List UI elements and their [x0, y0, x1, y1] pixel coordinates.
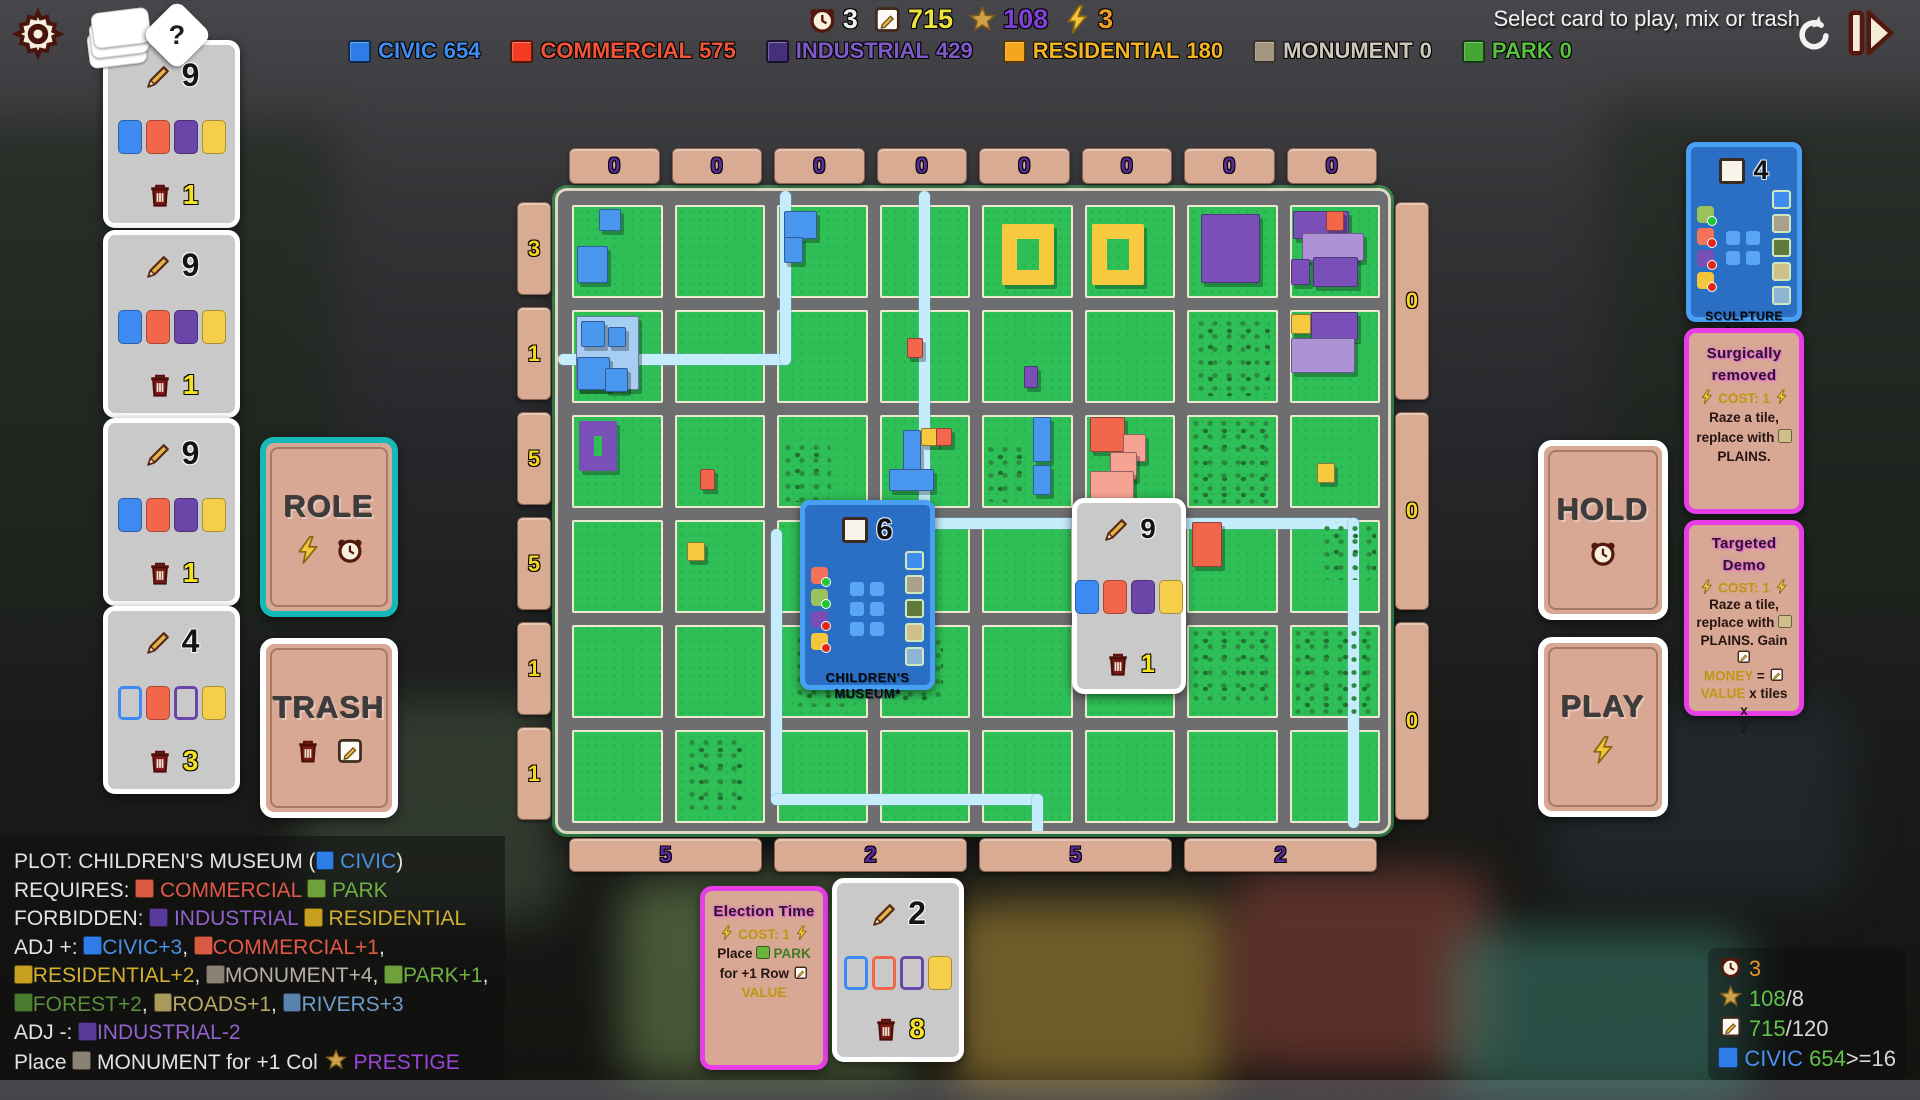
star-icon: [324, 1048, 348, 1072]
requirement-chip: [1697, 250, 1714, 267]
info-line: 3: [1718, 954, 1896, 984]
tile-chip: [202, 310, 226, 344]
note-icon: [335, 736, 365, 766]
tile-chip: [1159, 580, 1183, 614]
row-label-6[interactable]: 1: [517, 727, 551, 820]
end-turn-step-icon[interactable]: [1844, 6, 1898, 65]
building-tile: [1024, 366, 1039, 388]
action-card-body: COST: 1 Place PARKfor +1 Row VALUE: [712, 925, 816, 1003]
bolt-icon: [794, 925, 810, 941]
shape-cell: [870, 622, 884, 636]
adjacency-chip: [905, 623, 924, 642]
info-line: ADJ -: INDUSTRIAL-2: [14, 1019, 491, 1048]
forest-patch: [1320, 522, 1376, 580]
tile-chip: [900, 956, 924, 990]
info-line: ADJ +: CIVIC+3, COMMERCIAL+1,: [14, 934, 491, 963]
plot-info-panel: PLOT: CHILDREN'S MUSEUM ( CIVIC)REQUIRES…: [0, 836, 505, 1080]
tile-chip: [146, 686, 170, 720]
info-line: REQUIRES: COMMERCIAL PARK: [14, 877, 491, 906]
tile-type-chip: [756, 946, 769, 959]
card-tile-chips: [118, 120, 226, 154]
board-cell-r1c2[interactable]: [675, 205, 766, 298]
column-header-1[interactable]: 0: [569, 148, 660, 184]
tile-type-chip: [78, 1022, 97, 1041]
board-cell-r6c5[interactable]: [982, 730, 1073, 823]
forest-patch: [984, 443, 1022, 503]
tile-type-chip: [14, 993, 33, 1012]
info-line: PLOT: CHILDREN'S MUSEUM ( CIVIC): [14, 848, 491, 877]
building-tile: [700, 469, 716, 490]
building-tile: [1192, 522, 1221, 567]
note-icon: [793, 965, 809, 981]
row-label-3[interactable]: 5: [517, 412, 551, 505]
column-footer-3[interactable]: 5: [979, 838, 1172, 872]
legend-color-square: [511, 40, 534, 63]
action-card-targeted-demo[interactable]: Targeted Demo COST: 1 Raze a tile,replac…: [1684, 520, 1804, 716]
trash-icon: [1103, 649, 1133, 679]
hand-card-3[interactable]: 9 1: [103, 418, 240, 606]
column-header-3[interactable]: 0: [774, 148, 865, 184]
clock-icon: [1588, 538, 1618, 568]
plot-tile-icon: [1719, 158, 1745, 184]
river-segment: [1032, 794, 1043, 834]
board-cell-r4c2[interactable]: [675, 520, 766, 613]
resource-note: 715: [872, 4, 953, 35]
column-footer-2[interactable]: 2: [774, 838, 967, 872]
hold-button-card[interactable]: HOLD: [1538, 440, 1668, 620]
bolt-icon: [293, 535, 323, 565]
building-tile: [599, 209, 621, 231]
column-header-7[interactable]: 0: [1184, 148, 1275, 184]
tile-chip: [118, 498, 142, 532]
tile-type-chip: [135, 879, 154, 898]
river-segment: [771, 529, 782, 805]
shape-cell: [1726, 231, 1740, 245]
pencil-icon: [870, 899, 900, 929]
trash-icon: [871, 1014, 901, 1044]
row-label-4[interactable]: 5: [517, 517, 551, 610]
plot-adjacency-chips: [905, 551, 924, 666]
bolt-icon: [1699, 389, 1715, 405]
building-tile: [1311, 312, 1358, 340]
action-card-title: Targeted Demo: [1696, 533, 1792, 577]
building-tile: [1090, 471, 1134, 499]
pencil-icon: [1102, 514, 1132, 544]
note-icon: [1736, 649, 1752, 665]
tile-type-legend: CIVIC654COMMERCIAL575INDUSTRIAL429RESIDE…: [348, 38, 1572, 64]
card-cost: 9: [182, 247, 200, 284]
info-line: FOREST+2, ROADS+1, RIVERS+3: [14, 991, 491, 1020]
action-card-title: Surgically removed: [1696, 343, 1792, 387]
column-footer-1[interactable]: 5: [569, 838, 762, 872]
tile-type-chip: [1778, 615, 1791, 628]
card-cost: 4: [182, 623, 200, 660]
forest-patch: [1194, 317, 1270, 395]
card-trash-count: 1: [183, 179, 199, 211]
action-card-election-time[interactable]: Election Time COST: 1 Place PARKfor +1 R…: [700, 886, 828, 1070]
building-tile: [605, 368, 629, 392]
bolt-icon: [1774, 389, 1790, 405]
pencil-icon: [144, 251, 174, 281]
tile-type-chip: [304, 908, 323, 927]
tile-type-chip: [83, 936, 102, 955]
tile-chip: [202, 498, 226, 532]
column-header-8[interactable]: 0: [1287, 148, 1378, 184]
right-label-1[interactable]: 0: [1395, 202, 1429, 400]
info-line: CIVIC 654>=16: [1718, 1044, 1896, 1074]
shape-cell: [850, 622, 864, 636]
board-cell-r6c6[interactable]: [1085, 730, 1176, 823]
resource-bar: 37151083: [807, 4, 1113, 35]
shape-cell: [850, 602, 864, 616]
requirement-chip: [811, 633, 828, 650]
adjacency-chip: [1772, 262, 1791, 281]
card-cost: 9: [1140, 513, 1156, 545]
shape-cell: [870, 602, 884, 616]
board-cell-r5c1[interactable]: [572, 625, 663, 718]
column-header-4[interactable]: 0: [877, 148, 968, 184]
note-icon: [872, 4, 903, 35]
adjacency-chip: [1772, 190, 1791, 209]
building-tile: [907, 338, 923, 359]
plot-value: 6: [876, 513, 893, 547]
trash-icon: [145, 746, 175, 776]
board-cell-r6c3[interactable]: [777, 730, 868, 823]
bolt-icon: [719, 925, 735, 941]
tile-type-chip: [316, 851, 335, 870]
action-card-body: COST: 1 Raze a tile,replace with PLAINS.: [1696, 389, 1792, 467]
requirement-chip: [1697, 272, 1714, 289]
help-icon[interactable]: ?: [152, 10, 202, 60]
plot-shape-grid: [1726, 231, 1760, 265]
plot-card-childrens-museum[interactable]: 6 CHILDREN'S MUSEUM*: [800, 500, 935, 690]
card-cost: 2: [908, 895, 926, 932]
plot-requirement-chips: [1697, 206, 1714, 289]
card-trash-count: 8: [909, 1013, 925, 1045]
adjacency-chip: [1772, 286, 1791, 305]
resource-clock: 3: [807, 4, 858, 35]
bolt-icon: [1588, 735, 1618, 765]
requirement-chip: [1697, 228, 1714, 245]
shape-cell: [850, 582, 864, 596]
tile-type-chip: [14, 965, 33, 984]
tile-chip: [118, 310, 142, 344]
legend-color-square: [766, 40, 789, 63]
tile-chip: [174, 686, 198, 720]
pencil-icon: [144, 439, 174, 469]
card-tile-chips: [1075, 580, 1183, 614]
shape-cell: [870, 582, 884, 596]
deck-stack-icon[interactable]: [84, 8, 154, 64]
action-card-surgically-removed[interactable]: Surgically removed COST: 1 Raze a tile,r…: [1684, 328, 1804, 514]
board-cell-r4c1[interactable]: [572, 520, 663, 613]
board-cell-r2c6[interactable]: [1085, 310, 1176, 403]
building-tile: [687, 542, 704, 561]
tile-chip: [118, 120, 142, 154]
adjacency-chip: [905, 599, 924, 618]
row-labels: 315511: [517, 188, 551, 834]
tile-type-chip: [384, 965, 403, 984]
adjacency-chip: [905, 647, 924, 666]
right-label-3[interactable]: 0: [1395, 622, 1429, 820]
trash-icon: [145, 370, 175, 400]
play-button-card[interactable]: PLAY: [1538, 637, 1668, 817]
tile-chip: [146, 120, 170, 154]
tile-type-chip: [307, 879, 326, 898]
building-tile: [936, 428, 952, 446]
card-trash-count: 1: [183, 557, 199, 589]
action-card-body: COST: 1 Raze a tile,replace with PLAINS.…: [1696, 579, 1792, 738]
city-board[interactable]: [555, 188, 1391, 834]
row-label-2[interactable]: 1: [517, 307, 551, 400]
plot-value: 4: [1753, 155, 1768, 186]
info-line: FORBIDDEN: INDUSTRIAL RESIDENTIAL: [14, 905, 491, 934]
requirement-chip: [811, 611, 828, 628]
board-cell-r6c8[interactable]: [1290, 730, 1381, 823]
plot-card-sculpture-park[interactable]: 4 SCULPTURE PARK*: [1686, 142, 1802, 322]
forest-patch: [1189, 627, 1274, 701]
plot-name: CHILDREN'S MUSEUM*: [811, 670, 924, 703]
building-tile: [1313, 257, 1358, 287]
tile-chip: [1103, 580, 1127, 614]
requirement-chip: [1697, 206, 1714, 223]
right-label-2[interactable]: 0: [1395, 412, 1429, 610]
star-icon: [967, 4, 998, 35]
legend-item-residential: RESIDENTIAL180: [1003, 38, 1223, 64]
tile-type-chip: [1718, 1047, 1739, 1068]
board-cell-r5c5[interactable]: [982, 625, 1073, 718]
building-tile: [903, 430, 921, 475]
card-tile-chips: [844, 956, 952, 990]
building-tile: [784, 237, 802, 263]
pencil-icon: [144, 627, 174, 657]
clock-icon: [1718, 954, 1743, 979]
legend-color-square: [1462, 40, 1485, 63]
forest-patch: [1291, 627, 1376, 714]
tile-type-chip: [194, 936, 213, 955]
board-cell-r6c4[interactable]: [880, 730, 971, 823]
building-tile: [889, 469, 934, 491]
building-tile: [1033, 417, 1051, 462]
building-tile: [1092, 224, 1144, 285]
info-line: 108/8: [1718, 984, 1896, 1014]
legend-item-park: PARK0: [1462, 38, 1572, 64]
resource-star: 108: [967, 4, 1048, 35]
note-icon: [1718, 1014, 1743, 1039]
hold-label: HOLD: [1557, 492, 1649, 528]
tile-chip: [202, 686, 226, 720]
building-tile: [581, 321, 605, 347]
board-cell-r5c2[interactable]: [675, 625, 766, 718]
settings-gear-icon[interactable]: [12, 8, 64, 60]
star-icon: [1718, 984, 1743, 1009]
column-footers: 5252: [555, 838, 1391, 874]
tile-chip: [928, 956, 952, 990]
bolt-icon: [1062, 4, 1093, 35]
tile-chip: [174, 310, 198, 344]
card-cost: 9: [182, 435, 200, 472]
status-message: Select card to play, mix or trash: [1494, 6, 1801, 32]
row-label-5[interactable]: 1: [517, 622, 551, 715]
tile-chip: [146, 498, 170, 532]
info-line: Place MONUMENT for +1 Col PRESTIGE: [14, 1048, 491, 1077]
column-header-2[interactable]: 0: [672, 148, 763, 184]
shape-cell: [1746, 231, 1760, 245]
role-label: ROLE: [284, 489, 374, 525]
building-tile: [1090, 417, 1125, 452]
tile-type-chip: [206, 965, 225, 984]
column-header-5[interactable]: 0: [979, 148, 1070, 184]
plot-adjacency-chips: [1772, 190, 1791, 305]
board-cell-r3c2[interactable]: [675, 415, 766, 508]
bolt-icon: [1699, 579, 1715, 595]
hand-card-2[interactable]: 9 1: [103, 230, 240, 418]
tile-chip: [174, 120, 198, 154]
row-label-1[interactable]: 3: [517, 202, 551, 295]
right-column-labels: 000: [1395, 188, 1429, 834]
forest-patch: [1189, 417, 1274, 504]
requirement-chip: [811, 589, 828, 606]
tile-chip: [202, 120, 226, 154]
board-hand-card[interactable]: 9 1: [1072, 498, 1186, 694]
forest-patch: [781, 441, 832, 502]
legend-item-monument: MONUMENT0: [1253, 38, 1432, 64]
tile-chip: [146, 310, 170, 344]
card-trash-count: 1: [1141, 650, 1155, 679]
tile-type-chip: [149, 908, 168, 927]
building-tile: [1201, 214, 1259, 283]
card-tile-chips: [118, 686, 226, 720]
legend-item-industrial: INDUSTRIAL429: [766, 38, 973, 64]
building-tile: [1002, 224, 1054, 285]
deck-preview-card[interactable]: 2 8: [832, 878, 964, 1062]
tile-type-chip: [1778, 429, 1791, 442]
trash-label: TRASH: [273, 690, 385, 726]
tile-chip: [1075, 580, 1099, 614]
building-tile: [1317, 463, 1335, 483]
building-tile: [608, 327, 626, 348]
card-tile-chips: [118, 498, 226, 532]
clock-icon: [807, 4, 838, 35]
building-tile: [1326, 211, 1344, 232]
pencil-icon: [144, 61, 174, 91]
board-cell-r2c5[interactable]: [982, 310, 1073, 403]
adjacency-chip: [1772, 214, 1791, 233]
tile-chip: [844, 956, 868, 990]
building-tile: [577, 246, 608, 283]
requirement-chip: [811, 567, 828, 584]
building-tile: [1033, 465, 1051, 495]
undo-refresh-icon[interactable]: [1792, 12, 1836, 61]
adjacency-chip: [905, 551, 924, 570]
tile-chip: [1131, 580, 1155, 614]
board-cell-r3c8[interactable]: [1290, 415, 1381, 508]
trash-button-card[interactable]: TRASH: [260, 638, 398, 818]
legend-item-commercial: COMMERCIAL575: [511, 38, 736, 64]
forest-patch: [685, 736, 743, 810]
goal-stats-panel: 3 108/8 715/120 CIVIC 654>=16: [1708, 948, 1906, 1080]
info-line: 715/120: [1718, 1014, 1896, 1044]
trash-icon: [145, 558, 175, 588]
building-tile: [1291, 259, 1309, 285]
bolt-icon: [1774, 579, 1790, 595]
tile-chip: [872, 956, 896, 990]
tile-type-chip: [283, 993, 302, 1012]
adjacency-chip: [1772, 238, 1791, 257]
column-header-6[interactable]: 0: [1082, 148, 1173, 184]
card-tile-chips: [118, 310, 226, 344]
note-icon: [1769, 667, 1785, 683]
building-tile: [1291, 338, 1355, 373]
board-cell-r6c7[interactable]: [1187, 730, 1278, 823]
legend-color-square: [1003, 40, 1026, 63]
building-tile: [579, 421, 617, 471]
adjacency-chip: [905, 575, 924, 594]
board-cell-r6c1[interactable]: [572, 730, 663, 823]
river-segment: [771, 794, 1043, 805]
card-trash-count: 1: [183, 369, 199, 401]
plot-requirement-chips: [811, 567, 828, 650]
hand-card-4[interactable]: 4 3: [103, 606, 240, 794]
clock-icon: [335, 535, 365, 565]
shape-cell: [1746, 251, 1760, 265]
play-label: PLAY: [1561, 689, 1645, 725]
shape-cell: [1726, 251, 1740, 265]
column-footer-4[interactable]: 2: [1184, 838, 1377, 872]
tile-type-chip: [154, 993, 173, 1012]
board-cell-r4c5[interactable]: [982, 520, 1073, 613]
column-headers: 00000000: [555, 148, 1391, 186]
resource-bolt: 3: [1062, 4, 1113, 35]
plot-shape-grid: [850, 582, 884, 636]
legend-item-civic: CIVIC654: [348, 38, 480, 64]
building-tile: [1291, 314, 1311, 335]
role-button-card[interactable]: ROLE: [260, 437, 398, 617]
hand-card-1[interactable]: 9 1: [103, 40, 240, 228]
info-line: RESIDENTIAL+2, MONUMENT+4, PARK+1,: [14, 962, 491, 991]
legend-color-square: [348, 40, 371, 63]
legend-color-square: [1253, 40, 1276, 63]
help-question-mark: ?: [169, 20, 186, 51]
card-trash-count: 3: [183, 745, 199, 777]
tile-chip: [174, 498, 198, 532]
action-card-title: Election Time: [712, 901, 816, 923]
tile-chip: [118, 686, 142, 720]
trash-icon: [293, 736, 323, 766]
trash-icon: [145, 180, 175, 210]
deck-card-back: [90, 7, 152, 50]
tile-type-chip: [72, 1051, 91, 1070]
plot-tile-icon: [842, 517, 868, 543]
building-tile: [784, 211, 817, 239]
